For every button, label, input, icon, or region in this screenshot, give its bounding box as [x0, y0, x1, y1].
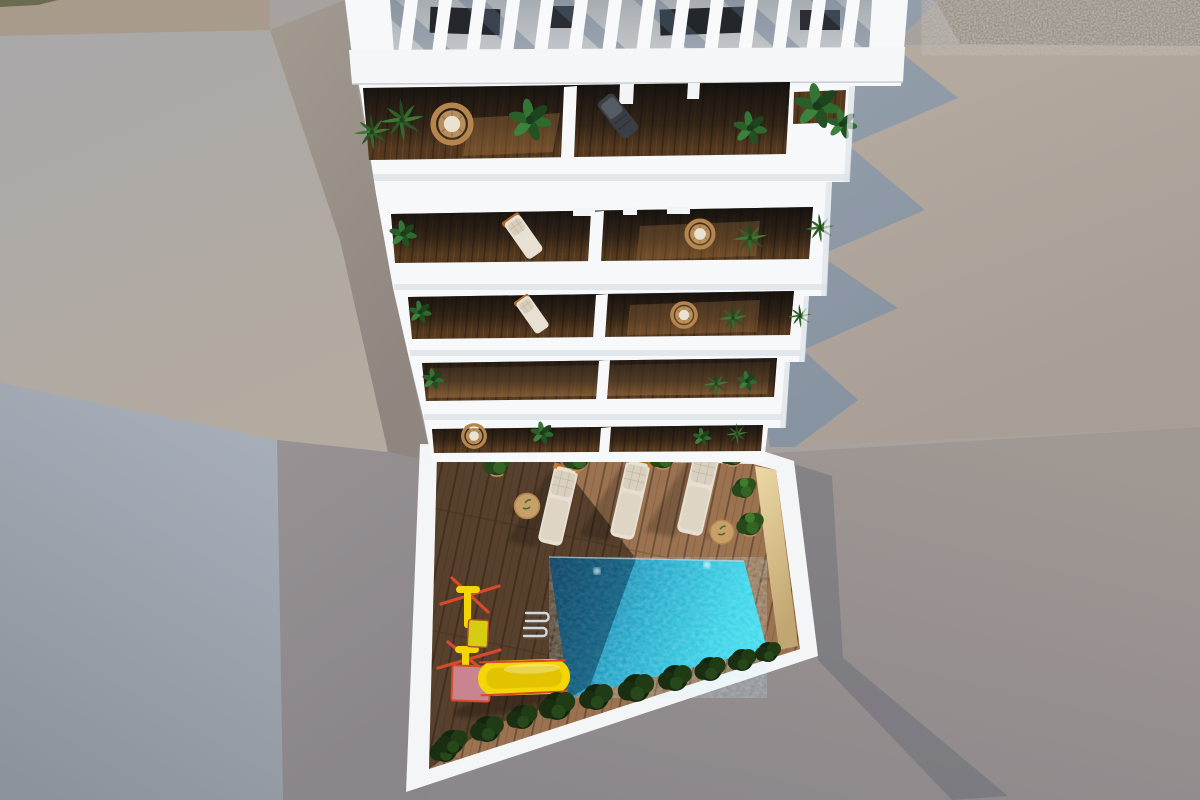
- balcony-floor-3: [408, 291, 812, 339]
- pool-lamp: [594, 568, 600, 574]
- wicker-chair: [463, 425, 486, 448]
- wicker-chair: [433, 105, 471, 143]
- wicker-chair: [687, 221, 714, 248]
- balcony-floor-2: [389, 207, 835, 263]
- gravel-strip: [935, 0, 1200, 46]
- aerial-render: [0, 0, 1200, 800]
- pool-lamp: [704, 562, 710, 568]
- top-left-strip: [0, 0, 270, 36]
- floor-shade-line: [424, 414, 782, 420]
- slide: [477, 658, 570, 696]
- balcony-floor-1: [354, 82, 858, 160]
- wicker-chair: [672, 303, 696, 327]
- balcony-floor-4: [422, 358, 777, 401]
- floor-shade-line: [394, 284, 826, 290]
- pergola-front-band: [349, 47, 905, 84]
- balcony-divider: [599, 427, 611, 453]
- floor-shade-line: [366, 174, 852, 181]
- rooftop-pergola: [349, 0, 905, 84]
- left-inset-courtyard: [0, 383, 283, 800]
- floor-shade-line: [410, 350, 802, 356]
